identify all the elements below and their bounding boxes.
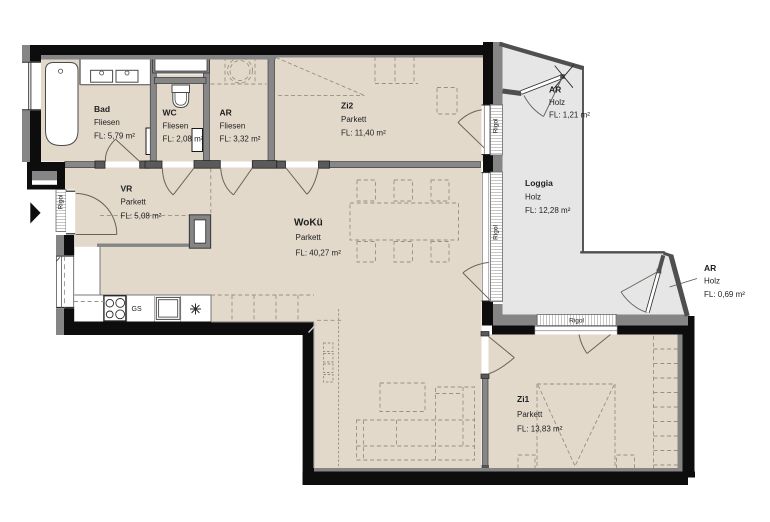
svg-text:Rigol: Rigol xyxy=(493,225,500,240)
svg-text:AR: AR xyxy=(704,263,716,273)
svg-text:FL: 13,83 m²: FL: 13,83 m² xyxy=(517,425,563,434)
svg-text:Parkett: Parkett xyxy=(121,198,147,207)
svg-text:Rigol: Rigol xyxy=(569,318,584,325)
svg-text:FL: 2,08 m²: FL: 2,08 m² xyxy=(163,135,204,144)
svg-text:FL: 11,40 m²: FL: 11,40 m² xyxy=(341,129,386,138)
svg-text:FL: 12,28 m²: FL: 12,28 m² xyxy=(525,206,571,215)
svg-text:Parkett: Parkett xyxy=(296,233,322,242)
svg-text:AR: AR xyxy=(549,85,561,95)
svg-text:GS: GS xyxy=(132,306,142,313)
svg-text:FL: 40,27 m²: FL: 40,27 m² xyxy=(296,249,342,258)
svg-text:Zi1: Zi1 xyxy=(517,394,530,404)
svg-text:Fliesen: Fliesen xyxy=(163,122,189,131)
svg-text:FL: 0,69 m²: FL: 0,69 m² xyxy=(704,290,745,299)
svg-text:Zi2: Zi2 xyxy=(341,101,354,111)
svg-text:Rigol: Rigol xyxy=(493,118,500,133)
svg-text:FL: 5,08 m²: FL: 5,08 m² xyxy=(121,212,162,221)
svg-text:Bad: Bad xyxy=(94,104,110,114)
svg-text:WC: WC xyxy=(163,108,177,118)
svg-text:Rigol: Rigol xyxy=(58,194,65,209)
svg-text:Holz: Holz xyxy=(704,277,720,286)
svg-text:Holz: Holz xyxy=(525,193,541,202)
svg-text:AR: AR xyxy=(220,108,232,118)
svg-text:FL: 1,21 m²: FL: 1,21 m² xyxy=(549,111,590,120)
svg-text:WoKü: WoKü xyxy=(294,218,323,229)
svg-text:FL: 5,79 m²: FL: 5,79 m² xyxy=(94,132,135,141)
svg-text:Fliesen: Fliesen xyxy=(94,118,120,127)
svg-text:Holz: Holz xyxy=(549,98,565,107)
svg-text:VR: VR xyxy=(121,184,133,194)
svg-text:Fliesen: Fliesen xyxy=(220,122,246,131)
svg-text:FL: 3,32 m²: FL: 3,32 m² xyxy=(220,135,261,144)
svg-text:Parkett: Parkett xyxy=(517,410,543,419)
svg-text:Parkett: Parkett xyxy=(341,115,367,124)
svg-text:Loggia: Loggia xyxy=(525,178,553,188)
